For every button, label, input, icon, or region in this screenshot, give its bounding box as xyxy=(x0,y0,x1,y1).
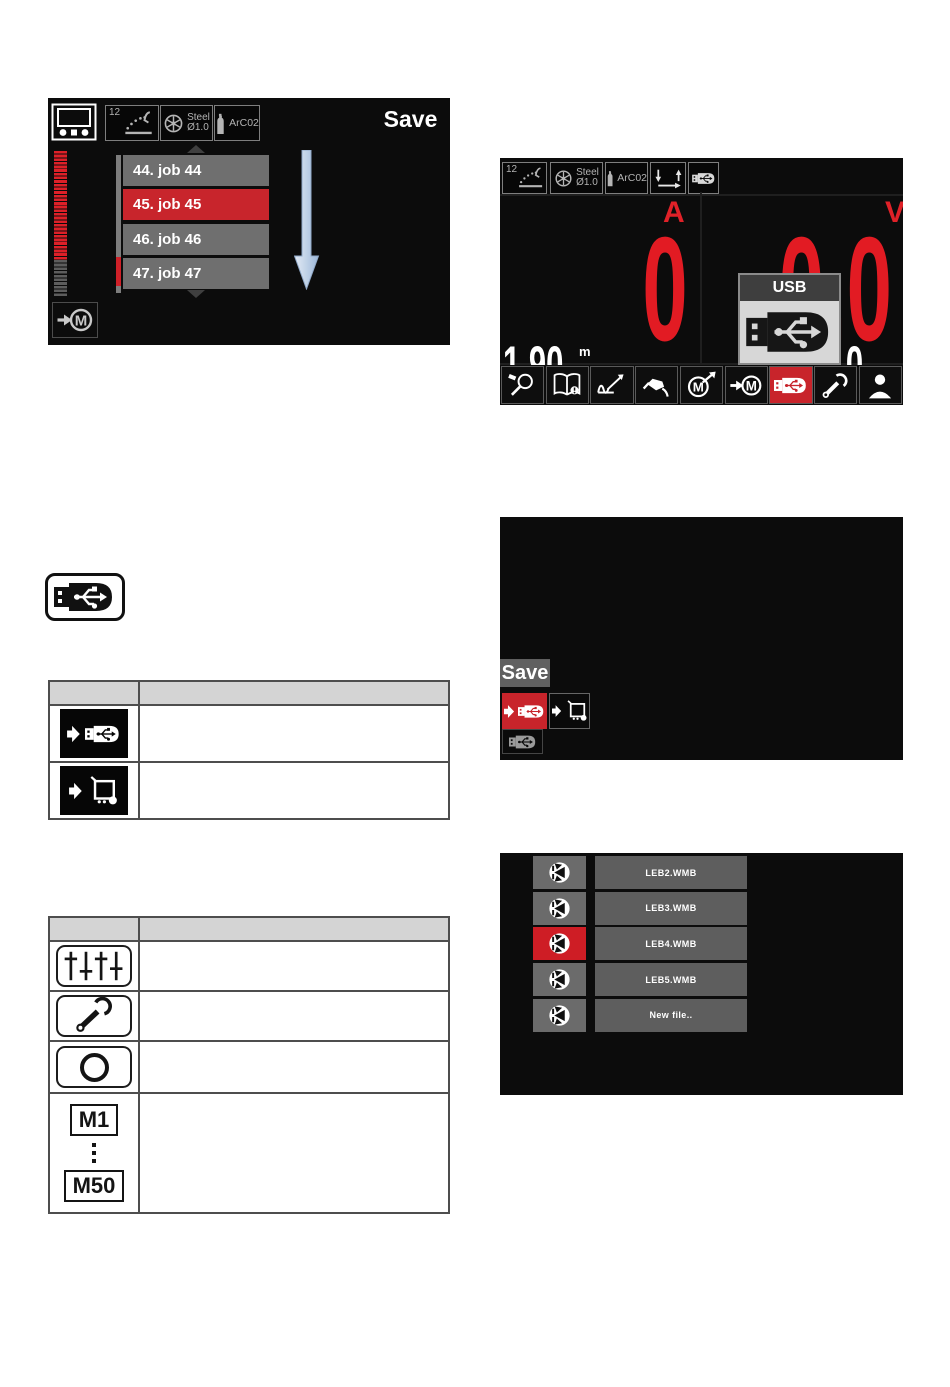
usb-popup-title: USB xyxy=(740,275,839,301)
wire-spool-icon xyxy=(163,113,184,134)
toolbar-usb[interactable] xyxy=(769,366,812,404)
file-name[interactable]: New file.. xyxy=(595,999,747,1032)
runin-burnback-box xyxy=(650,162,686,194)
file-list: LEB2.WMB LEB3.WMB LEB4.WMB LEB5.WMB New xyxy=(533,856,747,1034)
file-row-selected: LEB4.WMB xyxy=(533,927,747,960)
usb-popup-icon-panel xyxy=(740,301,839,363)
gas-bottle-icon xyxy=(215,111,226,135)
job-scrollbar[interactable] xyxy=(116,155,121,293)
job-label: 45. job 45 xyxy=(133,196,201,213)
wire-feed-speed-unit: m xyxy=(579,344,591,359)
usb-popup: USB xyxy=(738,273,841,365)
svg-text:M: M xyxy=(693,380,704,395)
toolbar-memory-save[interactable]: M xyxy=(680,366,723,404)
arrows-up-down-icon xyxy=(653,167,683,190)
screen-usb-file-list: LEB2.WMB LEB3.WMB LEB4.WMB LEB5.WMB New xyxy=(500,853,903,1095)
level-meter xyxy=(54,151,67,297)
toolbar-torch-test[interactable] xyxy=(501,366,544,404)
table-row: M1 M50 xyxy=(49,1093,449,1213)
process-number: 12 xyxy=(109,107,120,118)
usb-status-box xyxy=(688,162,719,194)
file-icon[interactable] xyxy=(533,927,586,960)
job-row-selected[interactable]: 45. job 45 xyxy=(123,189,269,220)
file-icon[interactable] xyxy=(533,892,586,925)
amps-value: 0 xyxy=(640,214,690,365)
process-status-box: 12 xyxy=(502,162,547,194)
table-row xyxy=(49,705,449,762)
memory-first-label: M1 xyxy=(70,1104,119,1136)
screen-title: Save xyxy=(373,106,448,133)
memory-load-icon xyxy=(52,302,98,338)
gas-label: ArC02 xyxy=(617,172,647,184)
table-header-icon xyxy=(49,917,139,941)
memory-range-icon: M1 M50 xyxy=(50,1104,138,1201)
circle-icon xyxy=(56,1046,132,1088)
table-cell-description xyxy=(139,991,449,1041)
table-cell-description xyxy=(139,941,449,991)
table-row xyxy=(49,762,449,819)
job-label: 44. job 44 xyxy=(133,162,201,179)
save-label: Save xyxy=(500,659,550,687)
table-header-description xyxy=(139,917,449,941)
toolbar-process-graph[interactable] xyxy=(590,366,633,404)
file-name[interactable]: LEB5.WMB xyxy=(595,963,747,996)
job-row[interactable]: 44. job 44 xyxy=(123,155,269,186)
meter-gray-segments xyxy=(54,260,67,297)
file-row: LEB5.WMB xyxy=(533,963,747,996)
usb-icon xyxy=(692,172,716,185)
table-row xyxy=(49,991,449,1041)
usb-menu-icon[interactable] xyxy=(502,729,543,754)
file-row: LEB3.WMB xyxy=(533,892,747,925)
wire-material-box: Steel Ø1.0 xyxy=(160,105,213,141)
job-row[interactable]: 47. job 47 xyxy=(123,258,269,289)
job-row[interactable]: 46. job 46 xyxy=(123,224,269,255)
wrench-icon xyxy=(56,995,132,1037)
meter-red-segments xyxy=(54,151,67,260)
table-header-description xyxy=(139,681,449,705)
screen-job-save: 12 Steel Ø1.0 ArC02 Save 44. job 44 45. … xyxy=(48,98,450,345)
toolbar-user[interactable] xyxy=(859,366,902,404)
file-row: LEB2.WMB xyxy=(533,856,747,889)
table-header-row xyxy=(49,917,449,941)
table-cell-description xyxy=(139,1093,449,1213)
scroll-up-indicator[interactable] xyxy=(187,145,205,153)
wire-diameter-label: Ø1.0 xyxy=(576,178,599,189)
sliders-icon xyxy=(56,945,132,987)
file-name[interactable]: LEB3.WMB xyxy=(595,892,747,925)
divider xyxy=(700,192,702,365)
table-row xyxy=(49,1041,449,1093)
usb-icon xyxy=(746,308,834,356)
memory-last-label: M50 xyxy=(64,1170,125,1202)
usb-actions-table xyxy=(48,680,450,820)
wire-material-box: Steel Ø1.0 xyxy=(550,162,603,194)
gas-label: ArC02 xyxy=(229,117,259,129)
file-icon[interactable] xyxy=(533,856,586,889)
table-header-row xyxy=(49,681,449,705)
table-cell-description xyxy=(139,705,449,762)
weld-process-icon xyxy=(517,166,545,190)
file-name[interactable]: LEB2.WMB xyxy=(595,856,747,889)
file-name[interactable]: LEB4.WMB xyxy=(595,927,747,960)
gas-box: ArC02 xyxy=(214,105,260,141)
screen-usb-save-menu: Save xyxy=(500,517,903,760)
wire-spool-icon xyxy=(554,169,573,188)
toolbar-manual-info[interactable] xyxy=(546,366,589,404)
table-cell-description xyxy=(139,1041,449,1093)
process-number: 12 xyxy=(506,164,517,175)
process-status-box: 12 xyxy=(105,105,159,141)
toolbar-settings-wrench[interactable] xyxy=(814,366,857,404)
usb-icon xyxy=(45,573,125,621)
scroll-hint-arrow-icon xyxy=(294,150,320,290)
job-scrollbar-thumb[interactable] xyxy=(116,257,121,286)
wire-diameter-label: Ø1.0 xyxy=(187,123,210,134)
job-label: 47. job 47 xyxy=(133,265,201,282)
main-toolbar: M xyxy=(500,365,903,405)
table-cell-description xyxy=(139,762,449,819)
wire-feeder-icon xyxy=(51,103,97,141)
file-row: New file.. xyxy=(533,999,747,1032)
file-icon[interactable] xyxy=(533,999,586,1032)
job-list: 44. job 44 45. job 45 46. job 46 47. job… xyxy=(123,155,269,293)
screen-main-usb: 12 Steel Ø1.0 ArC02 A V 0 0.0 1.90 m xyxy=(500,158,903,405)
usb-icon xyxy=(774,376,808,395)
table-header-icon xyxy=(49,681,139,705)
save-to-machine-button[interactable] xyxy=(549,693,590,729)
toolbar-torch[interactable] xyxy=(635,366,678,404)
load-to-machine-icon xyxy=(60,766,128,815)
ellipsis-dots xyxy=(92,1140,96,1165)
toolbar-memory-load[interactable] xyxy=(725,366,768,404)
weld-process-icon xyxy=(123,110,155,137)
save-to-usb-button[interactable] xyxy=(502,693,547,729)
manual-page: 12 Steel Ø1.0 ArC02 Save 44. job 44 45. … xyxy=(0,0,950,1387)
job-label: 46. job 46 xyxy=(133,231,201,248)
file-icon[interactable] xyxy=(533,963,586,996)
save-to-usb-icon xyxy=(60,709,128,758)
settings-icons-table: M1 M50 xyxy=(48,916,450,1214)
table-row xyxy=(49,941,449,991)
gas-box: ArC02 xyxy=(605,162,648,194)
gas-bottle-icon xyxy=(606,167,614,189)
